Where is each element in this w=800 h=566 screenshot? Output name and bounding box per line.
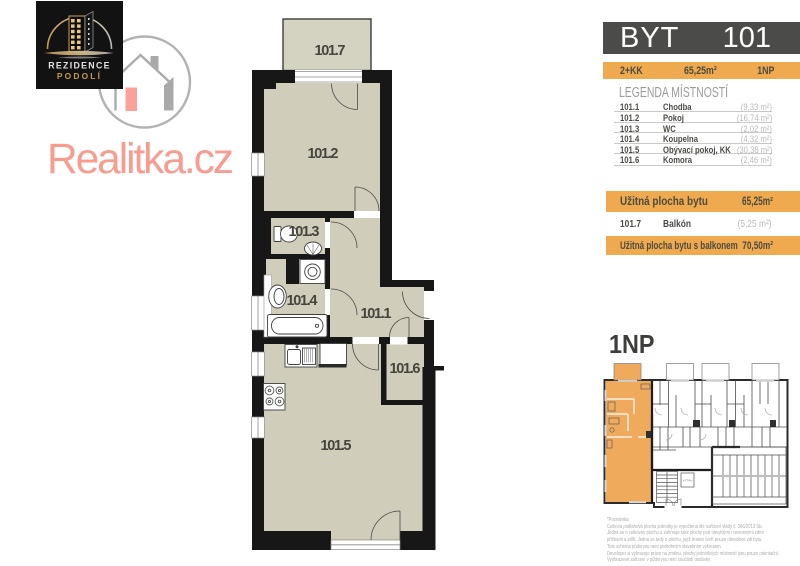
svg-text:101.5: 101.5 xyxy=(321,438,352,454)
svg-text:VÝTAH: VÝTAH xyxy=(683,479,693,483)
svg-text:PODOLÍ: PODOLÍ xyxy=(57,70,102,81)
svg-text:101.1: 101.1 xyxy=(361,306,392,322)
svg-text:101.7: 101.7 xyxy=(315,43,346,59)
svg-text:Realitka.cz: Realitka.cz xyxy=(47,136,234,183)
svg-text:101.3: 101.3 xyxy=(289,224,320,240)
svg-text:REZIDENCE: REZIDENCE xyxy=(48,61,111,71)
svg-text:101.2: 101.2 xyxy=(308,146,339,162)
svg-text:101.6: 101.6 xyxy=(390,361,421,377)
svg-text:101.4: 101.4 xyxy=(287,293,318,309)
